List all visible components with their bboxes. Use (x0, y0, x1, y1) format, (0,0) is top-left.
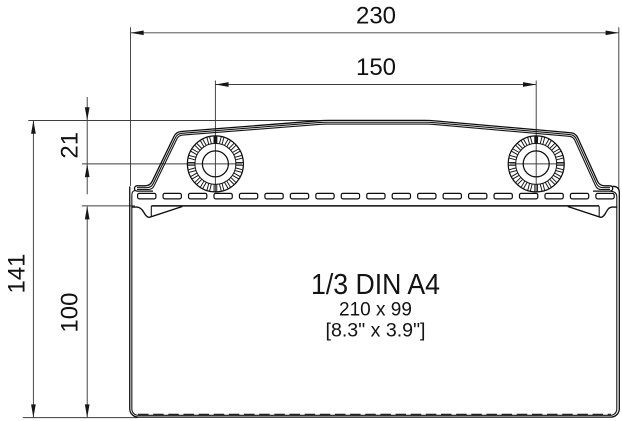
svg-text:[8.3" x 3.9"]: [8.3" x 3.9"] (326, 320, 426, 342)
svg-text:100: 100 (56, 293, 83, 333)
svg-text:150: 150 (356, 54, 396, 81)
svg-text:230: 230 (356, 2, 396, 29)
svg-text:210 x 99: 210 x 99 (339, 299, 412, 320)
svg-text:141: 141 (4, 253, 31, 293)
svg-text:21: 21 (56, 132, 83, 159)
svg-text:1/3 DIN A4: 1/3 DIN A4 (311, 268, 440, 300)
